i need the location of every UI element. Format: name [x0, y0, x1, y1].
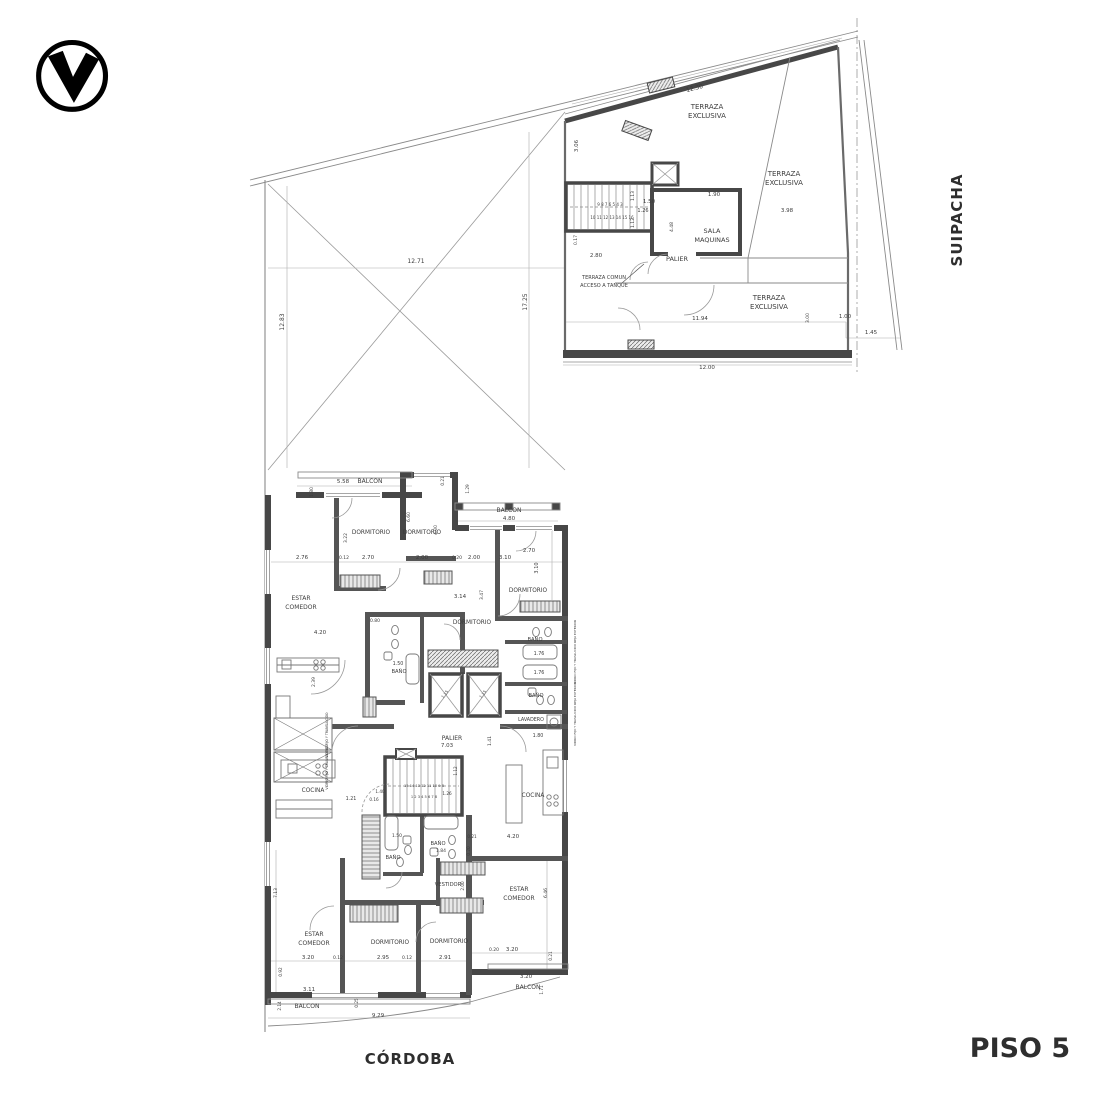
plan-label: COMEDOR — [503, 895, 534, 902]
upper-elevator-shaft — [652, 163, 678, 185]
floorplan-page: TERRAZAEXCLUSIVATERRAZAEXCLUSIVATERRAZAE… — [0, 0, 1100, 1100]
plan-label: 2.00 — [416, 555, 429, 561]
plan-label: LAVADERO — [518, 717, 544, 723]
plan-label: 1.84 — [436, 848, 446, 854]
plan-label: 5.58 — [337, 479, 350, 485]
plan-label: DORMITORIO — [430, 939, 469, 945]
plan-label: 11.94 — [692, 316, 708, 322]
plan-label: BAÑO — [391, 668, 406, 675]
plan-label: 4.48 — [669, 222, 675, 232]
plan-label: DORMITORIO — [453, 620, 492, 626]
plan-label: 4.00 — [433, 525, 439, 535]
plan-label: BALCON — [358, 478, 383, 485]
plan-label: 7.03 — [441, 743, 454, 749]
plan-label: 1.13 — [630, 191, 636, 201]
plan-label: 0.20 — [452, 555, 462, 561]
plan-label: COCINA — [302, 788, 325, 794]
plan-label: 0.92 — [278, 967, 283, 977]
plan-label: VESTIDOR — [435, 882, 462, 888]
plan-label: 1 2 3 4 5 6 7 8 — [411, 795, 438, 799]
plan-label: 0.20 — [466, 846, 471, 856]
plan-label: 3.10 — [534, 562, 540, 573]
plan-label: BAÑO — [527, 636, 542, 643]
plan-label: 3.47 — [479, 590, 485, 600]
plan-label: BAÑO — [528, 692, 543, 699]
plan-label: 12.71 — [407, 258, 424, 265]
plan-label: 1.00 — [839, 314, 852, 320]
plan-label: 2.00 — [460, 881, 465, 891]
plan-label: 15 14 13 12 11 10 9 8 — [404, 784, 445, 788]
floor-title-text: PISO 5 — [970, 1033, 1070, 1064]
plan-label: VIDRIO FIJO Y TRASLUCIDO REJA EXTERIOR — [573, 682, 577, 746]
plan-label: BAÑO — [385, 854, 400, 861]
plan-label: 0.12 — [333, 955, 343, 961]
plan-label: 3.20 — [506, 947, 519, 953]
plan-label: 3.20 — [520, 974, 533, 980]
plan-label: BALCON — [497, 507, 522, 514]
plan-label: 1.80 — [309, 487, 315, 497]
plan-label: ESTAR — [509, 886, 528, 893]
floor-title: PISO 5 — [945, 1033, 1095, 1064]
street-name: CÓRDOBA — [365, 1050, 456, 1068]
plan-label: DORMITORIO — [509, 588, 548, 594]
plan-label: 0.21 — [467, 834, 477, 839]
plan-label: 12.83 — [279, 313, 286, 330]
plan-label: 4.20 — [314, 630, 327, 636]
plan-label: 6.60 — [406, 512, 412, 522]
plan-label: 0.21 — [440, 476, 445, 486]
plan-label: 3.11 — [303, 987, 315, 993]
plan-label: 2.91 — [439, 955, 451, 961]
plan-label: TERRAZA COMUN — [581, 275, 626, 281]
plan-label: 1.50 — [643, 199, 656, 205]
plan-label: 7.13 — [273, 888, 279, 898]
plan-label: 0.12 — [402, 955, 412, 961]
plan-label: ESTAR — [304, 931, 323, 938]
plan-label: 0.80 — [370, 618, 380, 624]
plan-label: 1.26 — [637, 208, 648, 214]
plan-label: 3.00 — [805, 313, 811, 323]
plan-label: 4.20 — [507, 834, 520, 840]
plan-label: 12.00 — [699, 365, 715, 371]
plan-label: 10 11 12 13 14 15 16 — [590, 215, 634, 220]
plan-label: 3.14 — [454, 594, 467, 600]
elevator-shafts — [428, 650, 500, 716]
plan-label: 2.70 — [523, 548, 536, 554]
plan-label: 2.95 — [377, 955, 390, 961]
plan-label: 3.10 — [499, 555, 512, 561]
plan-label: 2.76 — [296, 555, 309, 561]
plan-label: 2.39 — [311, 677, 317, 687]
plan-label: 12.30 — [685, 83, 704, 94]
lower-staircase — [362, 749, 462, 879]
plan-label: 3.06 — [574, 139, 580, 152]
plan-label: TERRAZA — [767, 170, 801, 178]
plan-label: EXCLUSIVA — [765, 179, 803, 187]
plan-label: 1.76 — [534, 670, 545, 676]
plan-label: 17.25 — [522, 293, 529, 310]
plan-label: 3.22 — [343, 533, 349, 543]
street-name: SUIPACHA — [948, 174, 966, 267]
plan-label: 1.90 — [708, 192, 721, 198]
plan-label: 1.40 — [375, 789, 385, 794]
plan-label: BALCON — [516, 984, 541, 991]
terraza-parapet-wall — [563, 350, 852, 358]
plan-label: 1.45 — [865, 330, 878, 336]
plan-label: 0.12 — [339, 555, 349, 561]
plan-label: 1.26 — [442, 791, 452, 796]
plan-label: VIDRIO FIJO Y TRANSLUCIDO — [325, 744, 329, 790]
plan-label: TERRAZA — [690, 103, 724, 111]
plan-label: 1.50 — [392, 833, 402, 839]
plan-label: 1.21 — [346, 796, 357, 802]
site-boundary-lines — [250, 18, 902, 1032]
plan-label: 0.16 — [369, 797, 379, 802]
plan-label: 1.41 — [487, 736, 493, 746]
plan-label: ESTAR — [291, 595, 310, 602]
plan-label: COCINA — [522, 793, 545, 799]
plan-label: BALCON — [295, 1003, 320, 1010]
plan-label: 2.00 — [468, 555, 481, 561]
plan-label: 2.70 — [362, 555, 375, 561]
plan-label: 3.98 — [781, 208, 794, 214]
plan-label: 4.80 — [503, 516, 516, 522]
street-label-suipacha: SUIPACHA — [887, 150, 1027, 290]
plan-label: 0.17 — [573, 235, 579, 245]
plan-label: 1.71 — [539, 985, 544, 995]
plan-label: DORMITORIO — [371, 940, 410, 946]
plan-label: TERRAZA — [752, 294, 786, 302]
plan-label: SALA — [704, 227, 721, 235]
plan-label: 1.80 — [533, 733, 544, 739]
plan-label: 0.20 — [489, 947, 499, 953]
plan-label: 1.50 — [393, 661, 404, 667]
plan-label: BAÑO — [430, 840, 445, 847]
plan-label: 1.29 — [465, 484, 470, 494]
plan-label: 6.46 — [543, 888, 549, 898]
plan-label: 3.20 — [302, 955, 315, 961]
plan-label: VIDRIO FIJO Y TRASLUCIDO REJA EXTERIOR — [573, 620, 577, 684]
plan-label: 1.12 — [453, 766, 458, 776]
plan-label: 0.21 — [548, 951, 553, 961]
plan-label: 9 8 7 6 5 4 3 — [597, 202, 623, 207]
plan-label: 9.29 — [372, 1013, 385, 1019]
street-label-cordoba: CÓRDOBA — [320, 1050, 500, 1068]
plan-label: 2.80 — [590, 253, 603, 259]
plan-label: COMEDOR — [285, 604, 316, 611]
plan-label: ACCESO A TANQUE — [580, 283, 628, 289]
plan-label: 1.76 — [534, 651, 545, 657]
plan-label: PALIER — [442, 735, 462, 742]
plan-label: 0.25 — [354, 998, 359, 1008]
plan-label: EXCLUSIVA — [688, 112, 726, 120]
void-area-cross — [268, 112, 565, 470]
upper-staircase — [566, 183, 652, 231]
plan-label: MAQUINAS — [694, 236, 729, 244]
plan-label: PALIER — [666, 255, 689, 263]
plan-label: EXCLUSIVA — [750, 303, 788, 311]
sala-maquinas-room — [648, 190, 740, 274]
plan-label: DORMITORIO — [352, 530, 391, 536]
plan-label: COMEDOR — [298, 940, 329, 947]
plan-label: 2.14 — [277, 1001, 282, 1011]
